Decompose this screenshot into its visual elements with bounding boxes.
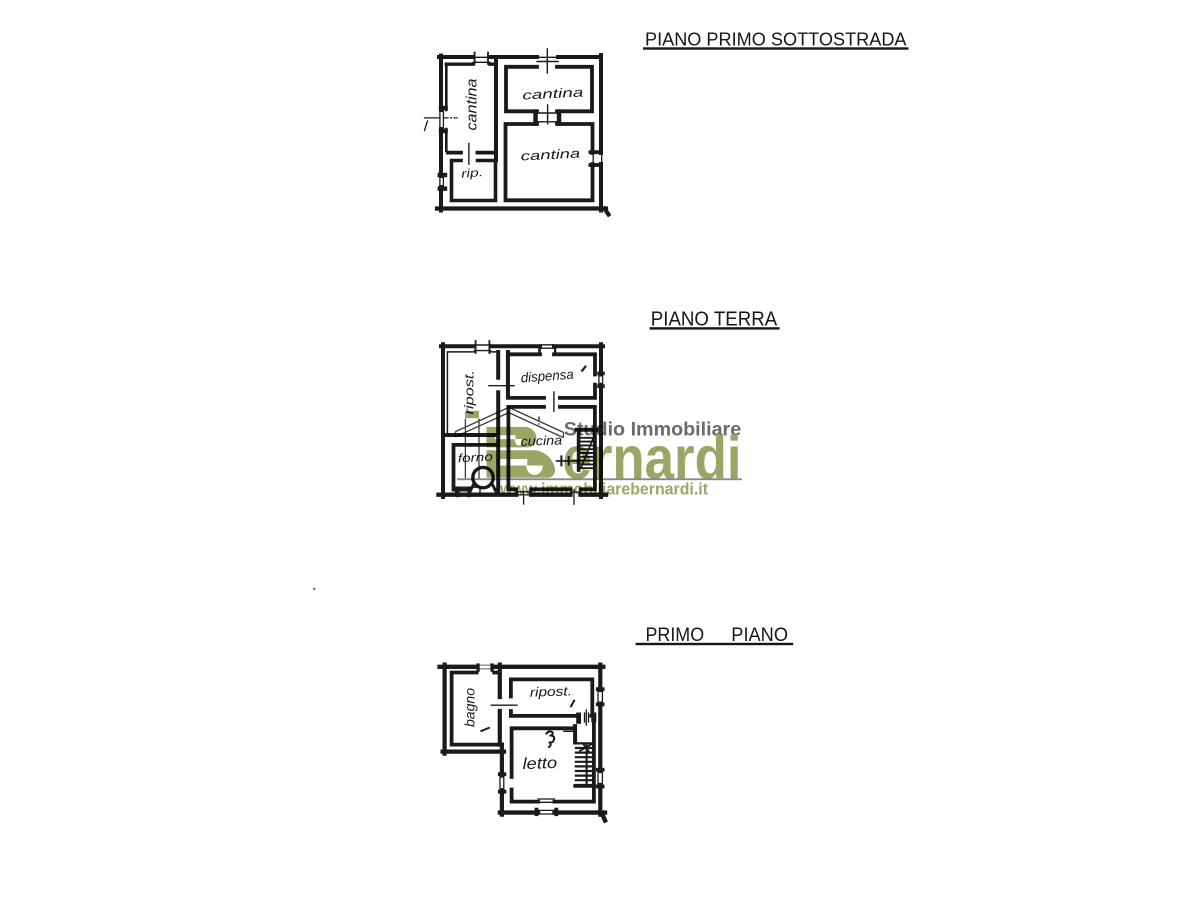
svg-text:cantina: cantina bbox=[522, 84, 584, 102]
svg-text:bagno: bagno bbox=[463, 687, 478, 727]
svg-text:ripost.: ripost. bbox=[462, 370, 477, 414]
svg-text:cantina: cantina bbox=[465, 79, 481, 131]
svg-text:PIANO: PIANO bbox=[731, 625, 788, 646]
svg-text:PRIMO: PRIMO bbox=[646, 625, 705, 646]
svg-text:cantina: cantina bbox=[520, 145, 580, 163]
svg-text:PIANO PRIMO SOTTOSTRADA: PIANO PRIMO SOTTOSTRADA bbox=[645, 29, 907, 50]
svg-text:rip.: rip. bbox=[461, 167, 484, 181]
svg-text:www.immobiliarebernardi.it: www.immobiliarebernardi.it bbox=[499, 479, 708, 498]
svg-text:letto: letto bbox=[522, 755, 557, 773]
svg-text:ripost.: ripost. bbox=[530, 683, 572, 699]
